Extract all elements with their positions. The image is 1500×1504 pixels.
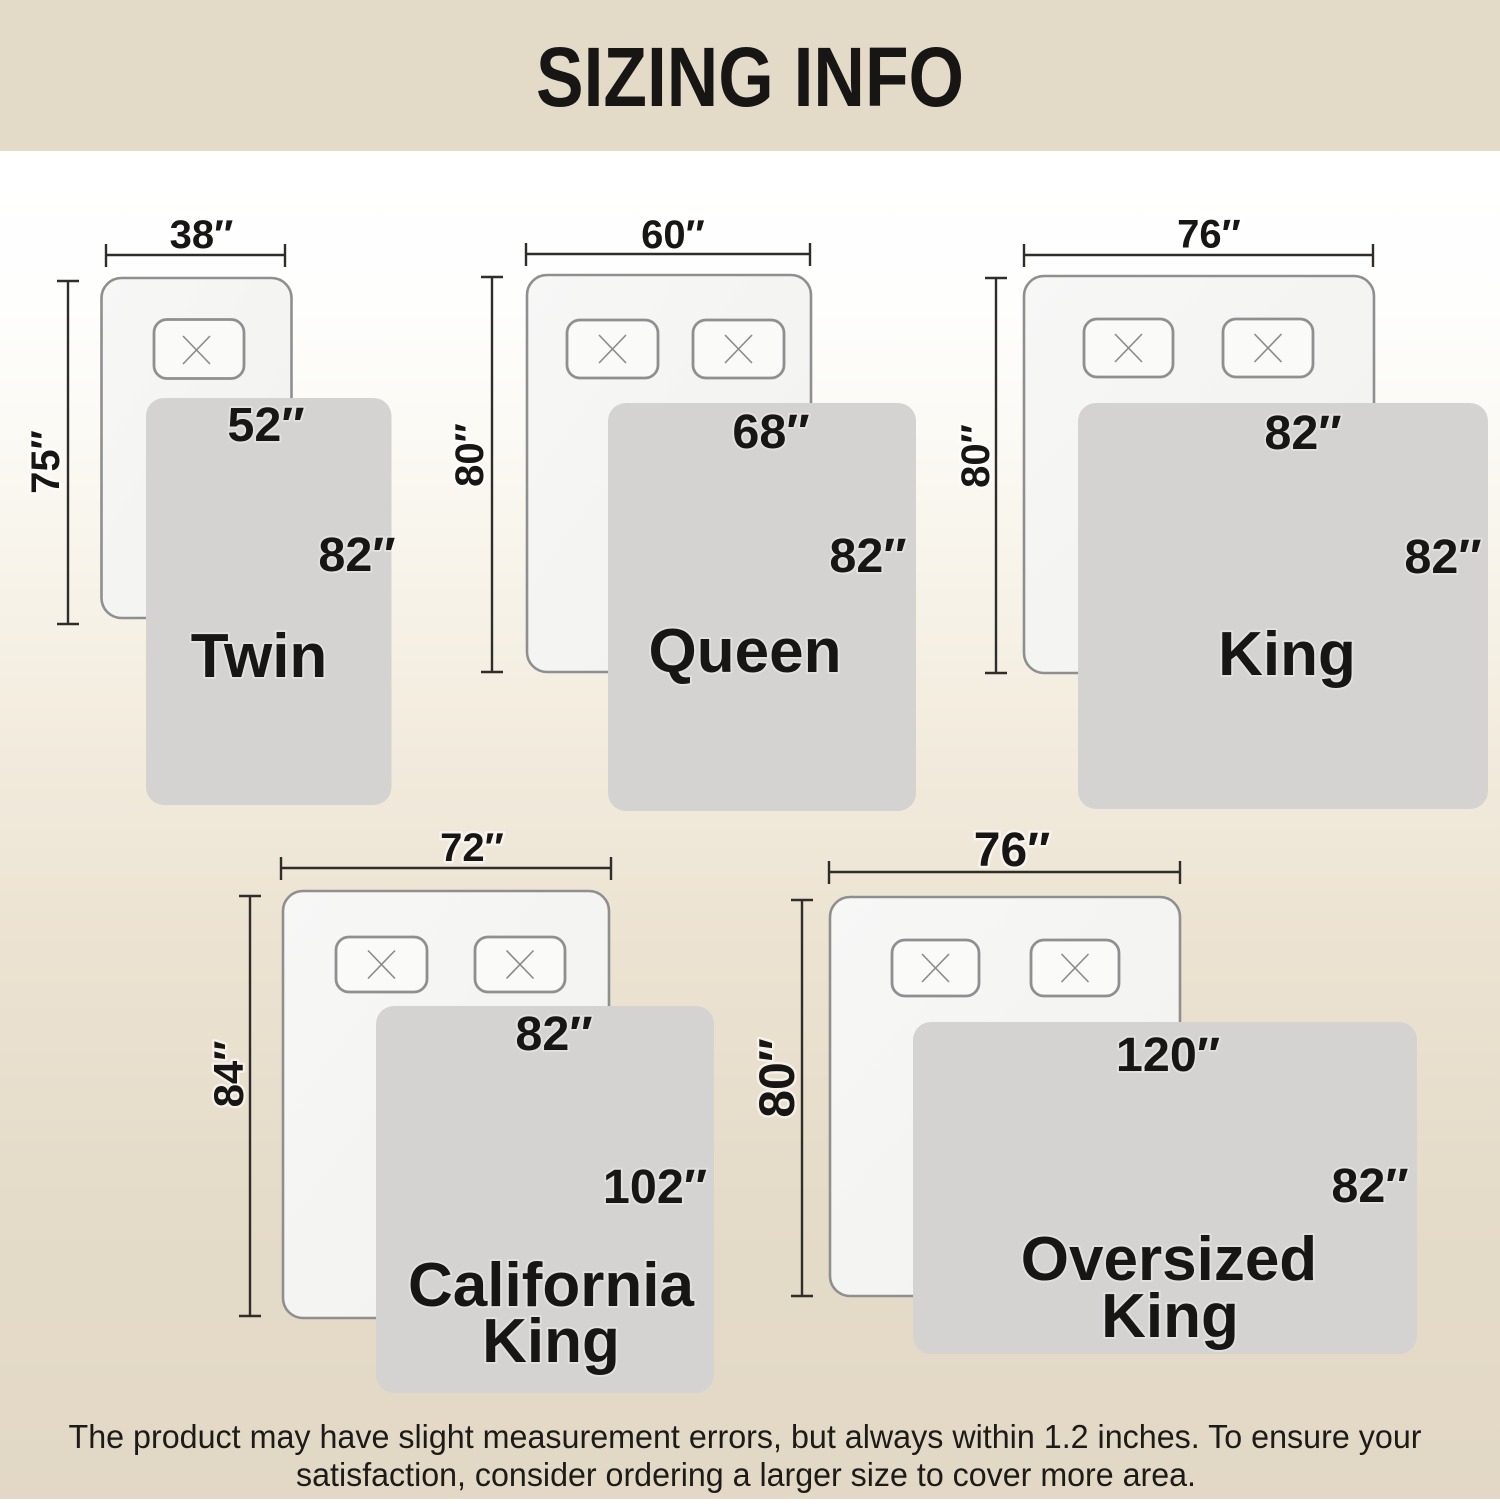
svg-text:82″: 82″ — [1331, 1159, 1408, 1213]
svg-text:52″: 52″ — [227, 398, 304, 452]
svg-text:76″: 76″ — [1177, 213, 1241, 257]
svg-text:82″: 82″ — [1404, 530, 1481, 584]
svg-text:60″: 60″ — [641, 213, 705, 257]
svg-text:80″: 80″ — [749, 1038, 805, 1118]
svg-text:80″: 80″ — [448, 423, 492, 487]
svg-text:King: King — [1101, 1282, 1239, 1351]
svg-text:68″: 68″ — [732, 405, 809, 459]
svg-text:The product may have slight me: The product may have slight measurement … — [69, 1418, 1422, 1455]
svg-text:38″: 38″ — [170, 213, 234, 257]
svg-text:82″: 82″ — [1264, 406, 1341, 460]
svg-text:SIZING INFO: SIZING INFO — [536, 30, 964, 124]
svg-text:72″: 72″ — [440, 826, 504, 870]
svg-text:75″: 75″ — [24, 430, 68, 494]
svg-text:80″: 80″ — [954, 424, 998, 488]
svg-text:Queen: Queen — [649, 617, 842, 686]
svg-text:satisfaction, consider orderin: satisfaction, consider ordering a larger… — [296, 1456, 1196, 1493]
svg-text:76″: 76″ — [974, 824, 1050, 877]
svg-text:King: King — [1218, 620, 1356, 689]
svg-text:84″: 84″ — [205, 1041, 252, 1108]
svg-text:82″: 82″ — [829, 529, 906, 583]
svg-text:120″: 120″ — [1116, 1028, 1220, 1082]
svg-text:102″: 102″ — [603, 1160, 707, 1214]
svg-text:King: King — [482, 1307, 620, 1376]
svg-text:82″: 82″ — [318, 528, 395, 582]
svg-text:Twin: Twin — [191, 622, 328, 691]
svg-text:82″: 82″ — [515, 1007, 592, 1061]
